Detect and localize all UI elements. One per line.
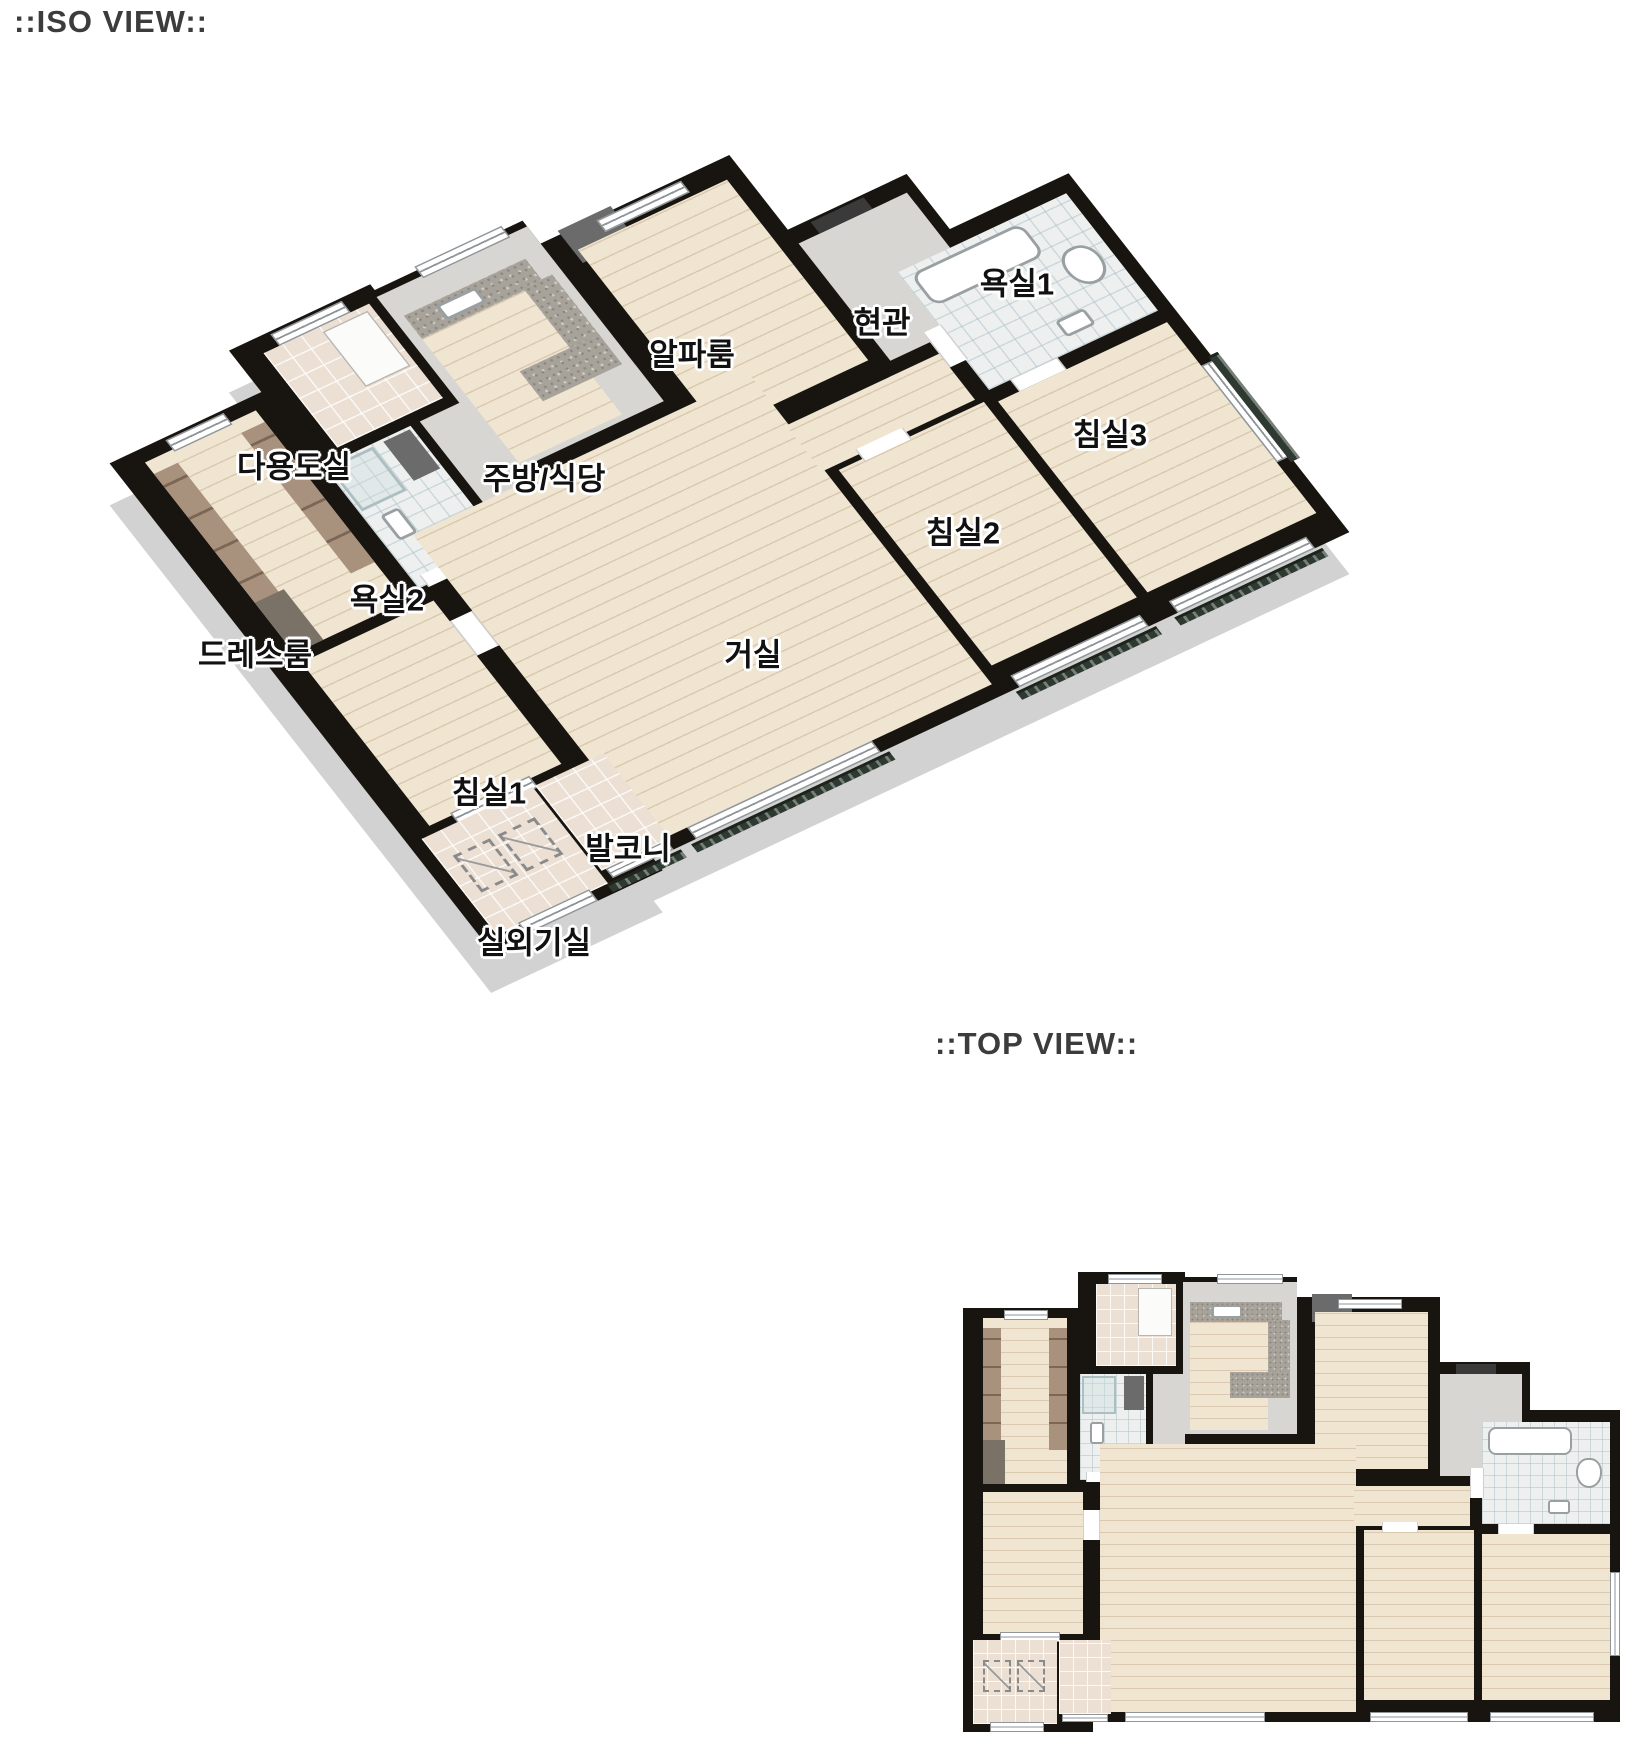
window [1004, 1310, 1048, 1320]
room-label-living-room: 거실 [724, 630, 781, 675]
apartment-plan [950, 1272, 1620, 1742]
sink [1548, 1500, 1570, 1514]
floor-bedroom-1 [983, 1492, 1083, 1634]
room-label-balcony: 발코니 [585, 824, 671, 869]
ac-unit-mark [983, 1660, 1011, 1692]
room-label-bathroom-1: 욕실1 [980, 259, 1054, 304]
floor-bedroom-3 [1482, 1534, 1610, 1700]
window [1062, 1714, 1108, 1722]
top-floorplan [950, 1272, 1620, 1742]
window [1108, 1274, 1162, 1284]
room-label-outdoor-unit-room: 실외기실 [477, 918, 591, 963]
window [1490, 1712, 1594, 1722]
iso-floorplan [0, 0, 1650, 1060]
sink [1090, 1422, 1104, 1444]
bathtub [1488, 1427, 1572, 1455]
room-label-utility-room: 다용도실 [237, 442, 351, 487]
door [1498, 1524, 1534, 1534]
room-label-bedroom-2: 침실2 [926, 508, 1000, 553]
wardrobe [1049, 1328, 1067, 1450]
ac-unit-mark [1017, 1660, 1045, 1692]
door [1382, 1522, 1418, 1532]
kitchen-sink [1212, 1305, 1242, 1318]
kitchen-island [1230, 1372, 1290, 1398]
window [990, 1722, 1044, 1732]
apartment-plan [60, 15, 1367, 971]
floor-living-room [1100, 1444, 1356, 1712]
door [1470, 1468, 1484, 1498]
room-label-bedroom-3: 침실3 [1073, 410, 1147, 455]
kitchen-counter [1268, 1320, 1290, 1378]
floorplan-page: ::ISO VIEW:: ::TOP VIEW:: [0, 0, 1650, 1754]
window [1217, 1274, 1283, 1284]
plan-wrapper [60, 15, 1367, 971]
window [1338, 1299, 1402, 1309]
toilet [1576, 1458, 1602, 1488]
wardrobe-cabinet [983, 1440, 1005, 1484]
window [1610, 1572, 1620, 1656]
entrance-door [1456, 1364, 1496, 1374]
door [1083, 1510, 1100, 1540]
shower [1082, 1376, 1116, 1414]
floor-hallway [1354, 1486, 1470, 1526]
room-label-alpha-room: 알파룸 [649, 330, 735, 375]
room-label-bathroom-2: 욕실2 [350, 575, 424, 620]
room-label-entrance: 현관 [853, 298, 910, 343]
room-label-kitchen-dining: 주방/식당 [483, 454, 606, 499]
window [1370, 1712, 1468, 1722]
floor-balcony [1059, 1640, 1111, 1714]
window [1125, 1712, 1265, 1722]
room-label-dress-room: 드레스룸 [198, 630, 312, 675]
bath-cabinet [1124, 1376, 1144, 1410]
room-label-bedroom-1: 침실1 [452, 768, 526, 813]
floor-bedroom-2 [1364, 1530, 1474, 1700]
washer-dais [1138, 1288, 1172, 1336]
